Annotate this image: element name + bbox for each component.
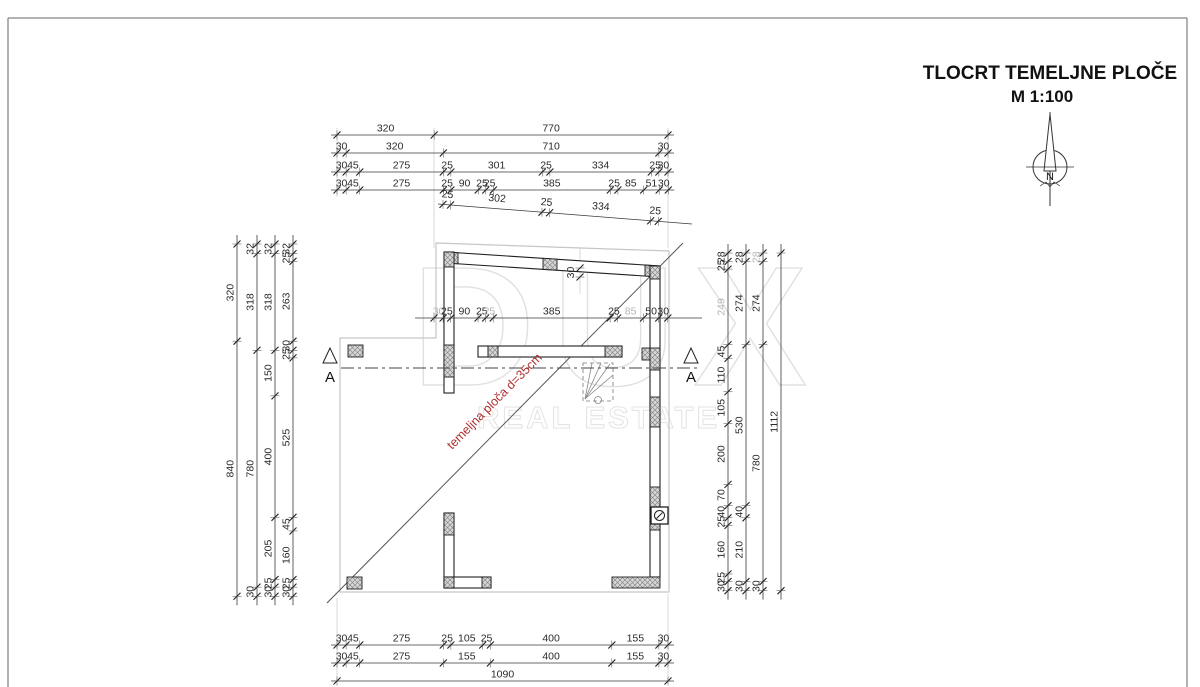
- section-label-left: A: [325, 369, 335, 386]
- dim-label: 1112: [769, 411, 781, 433]
- section-marker-left-icon: [323, 348, 337, 363]
- drawing-page: DUX REAL ESTATE TLOCRT TEMELJNE PLOČE M …: [0, 0, 1200, 687]
- dim-label: 30: [245, 586, 257, 598]
- dim-label: 25: [281, 252, 293, 264]
- dim-label: 30: [716, 580, 728, 592]
- dim-label: 210: [734, 541, 746, 559]
- dim-label: 25: [281, 348, 293, 360]
- section-label-right: A: [686, 369, 696, 386]
- dim-label: 25: [608, 306, 620, 318]
- dim-label: 25: [441, 188, 454, 201]
- drawing-title: TLOCRT TEMELJNE PLOČE: [923, 62, 1177, 84]
- dim-label: 30: [336, 651, 348, 663]
- column-top-mid: [543, 258, 557, 270]
- dim-label: 780: [751, 454, 763, 472]
- dim-label: 30: [336, 178, 348, 190]
- dim-label: 90: [459, 178, 471, 190]
- dim-label: 30: [658, 160, 670, 172]
- dim-label: 25: [716, 516, 728, 528]
- dim-label: 400: [542, 633, 560, 645]
- north-arrow-icon: N: [1026, 112, 1074, 206]
- dim-label: 45: [716, 346, 728, 358]
- dim-label: 275: [393, 651, 411, 663]
- wall-right-hatch-3: [650, 397, 660, 427]
- dim-label: 318: [245, 293, 257, 311]
- dim-label: 30: [281, 586, 293, 598]
- wall-bottom-centre-hatch-top: [444, 513, 454, 535]
- dim-label: 30: [658, 651, 670, 663]
- wall-right-hatch-4: [650, 487, 660, 507]
- wall-right-flange: [642, 348, 650, 360]
- dim-label: 530: [734, 416, 746, 434]
- dim-label: 40: [734, 506, 746, 518]
- dim-label: 155: [458, 651, 476, 663]
- dim-label: 51: [646, 178, 658, 190]
- dim-label: 30: [657, 306, 669, 318]
- dim-label: 334: [592, 160, 610, 172]
- dim-label: 275: [393, 160, 411, 172]
- dim-label: 110: [716, 367, 728, 384]
- dim-label: 85: [625, 306, 637, 318]
- dim-label: 302: [488, 192, 507, 205]
- dim-label: 385: [543, 306, 561, 318]
- floor-plan-drawing: DUX REAL ESTATE TLOCRT TEMELJNE PLOČE M …: [0, 0, 1200, 687]
- dim-label: 301: [488, 160, 506, 172]
- dim-label: 45: [347, 178, 359, 190]
- dim-label: 710: [542, 141, 560, 153]
- wall-left-hatch-mid: [444, 345, 454, 377]
- dim-label: 155: [627, 651, 645, 663]
- wall-mid-hatch-left: [488, 346, 498, 357]
- dim-label: 85: [625, 178, 637, 190]
- dim-label: 30: [658, 141, 670, 153]
- wall-bottom-right: [612, 577, 660, 588]
- dim-label: 30: [336, 141, 348, 153]
- dim-label: 1090: [491, 669, 515, 681]
- dim-label: 25: [481, 633, 493, 645]
- dim-label: 25: [540, 160, 552, 172]
- dim-label: 25: [540, 196, 553, 209]
- dim-label: 780: [245, 460, 257, 478]
- dim-label: 385: [543, 178, 561, 190]
- dim-label: 400: [542, 651, 560, 663]
- dim-label: 50: [645, 306, 657, 318]
- dim-label: 30: [658, 178, 670, 190]
- dim-label: 274: [734, 294, 746, 312]
- footing-left-upper: [348, 345, 363, 357]
- dim-label: 25: [716, 259, 728, 271]
- dim-label: 30: [336, 160, 348, 172]
- dim-label: 105: [716, 399, 728, 417]
- footing-left-lower: [347, 577, 362, 589]
- dim-label: 249: [716, 298, 728, 316]
- dim-label: 25: [608, 178, 620, 190]
- dim-label: 200: [716, 445, 728, 463]
- dim-label: 334: [592, 200, 611, 213]
- dim-label: 25: [484, 306, 496, 318]
- wall-right-hatch-1: [650, 266, 660, 279]
- dim-label: 150: [263, 364, 275, 382]
- dim-label: 25: [441, 160, 453, 172]
- wall-mid-hatch-right: [605, 346, 622, 357]
- dim-label: 32: [263, 243, 275, 255]
- dim-label: 30: [263, 586, 275, 598]
- wall-left-hatch-top: [444, 252, 454, 267]
- dim-label: 25: [441, 306, 453, 318]
- dim-label: 274: [751, 294, 763, 312]
- north-label: N: [1046, 171, 1054, 183]
- dim-label: 45: [347, 633, 359, 645]
- dim-label: 90: [459, 306, 471, 318]
- dim-label: 30: [565, 267, 577, 279]
- wall-bottom-centre-hatch-right: [482, 577, 491, 588]
- dim-label: 205: [263, 540, 275, 558]
- dim-label: 320: [377, 123, 395, 135]
- dim-label: 105: [458, 633, 476, 645]
- wall-mid-horizontal: [478, 346, 622, 357]
- dim-label: 770: [542, 123, 560, 135]
- dim-label: 45: [347, 160, 359, 172]
- dim-label: 70: [716, 489, 728, 501]
- dim-label: 525: [281, 429, 293, 447]
- dim-label: 32: [245, 243, 257, 255]
- dim-label: 25: [649, 205, 662, 218]
- dim-label: 320: [386, 141, 404, 153]
- dim-label: 45: [347, 651, 359, 663]
- dim-label: 400: [263, 448, 275, 466]
- dim-label: 840: [225, 460, 237, 478]
- dim-label: 30: [734, 580, 746, 592]
- watermark-real-estate: REAL ESTATE: [477, 400, 720, 435]
- dim-label: 25: [484, 178, 496, 190]
- dim-label: 30: [751, 580, 763, 592]
- dim-label: 160: [281, 546, 293, 564]
- drawing-scale: M 1:100: [1011, 87, 1073, 106]
- dim-label: 30: [336, 633, 348, 645]
- dim-label: 275: [393, 633, 411, 645]
- dim-label: 320: [225, 284, 237, 302]
- dim-label: 155: [627, 633, 645, 645]
- wall-bottom-centre-hatch-left: [444, 577, 454, 588]
- dim-label: 263: [281, 292, 293, 310]
- wall-right-hatch-2: [650, 348, 660, 370]
- dim-label: 45: [281, 518, 293, 530]
- title-block: TLOCRT TEMELJNE PLOČE M 1:100 N: [923, 62, 1177, 206]
- dim-label: 25: [441, 633, 453, 645]
- dim-label: 275: [393, 178, 411, 190]
- dim-label: 30: [658, 633, 670, 645]
- dim-label: 318: [263, 293, 275, 311]
- dim-label: 160: [716, 541, 728, 559]
